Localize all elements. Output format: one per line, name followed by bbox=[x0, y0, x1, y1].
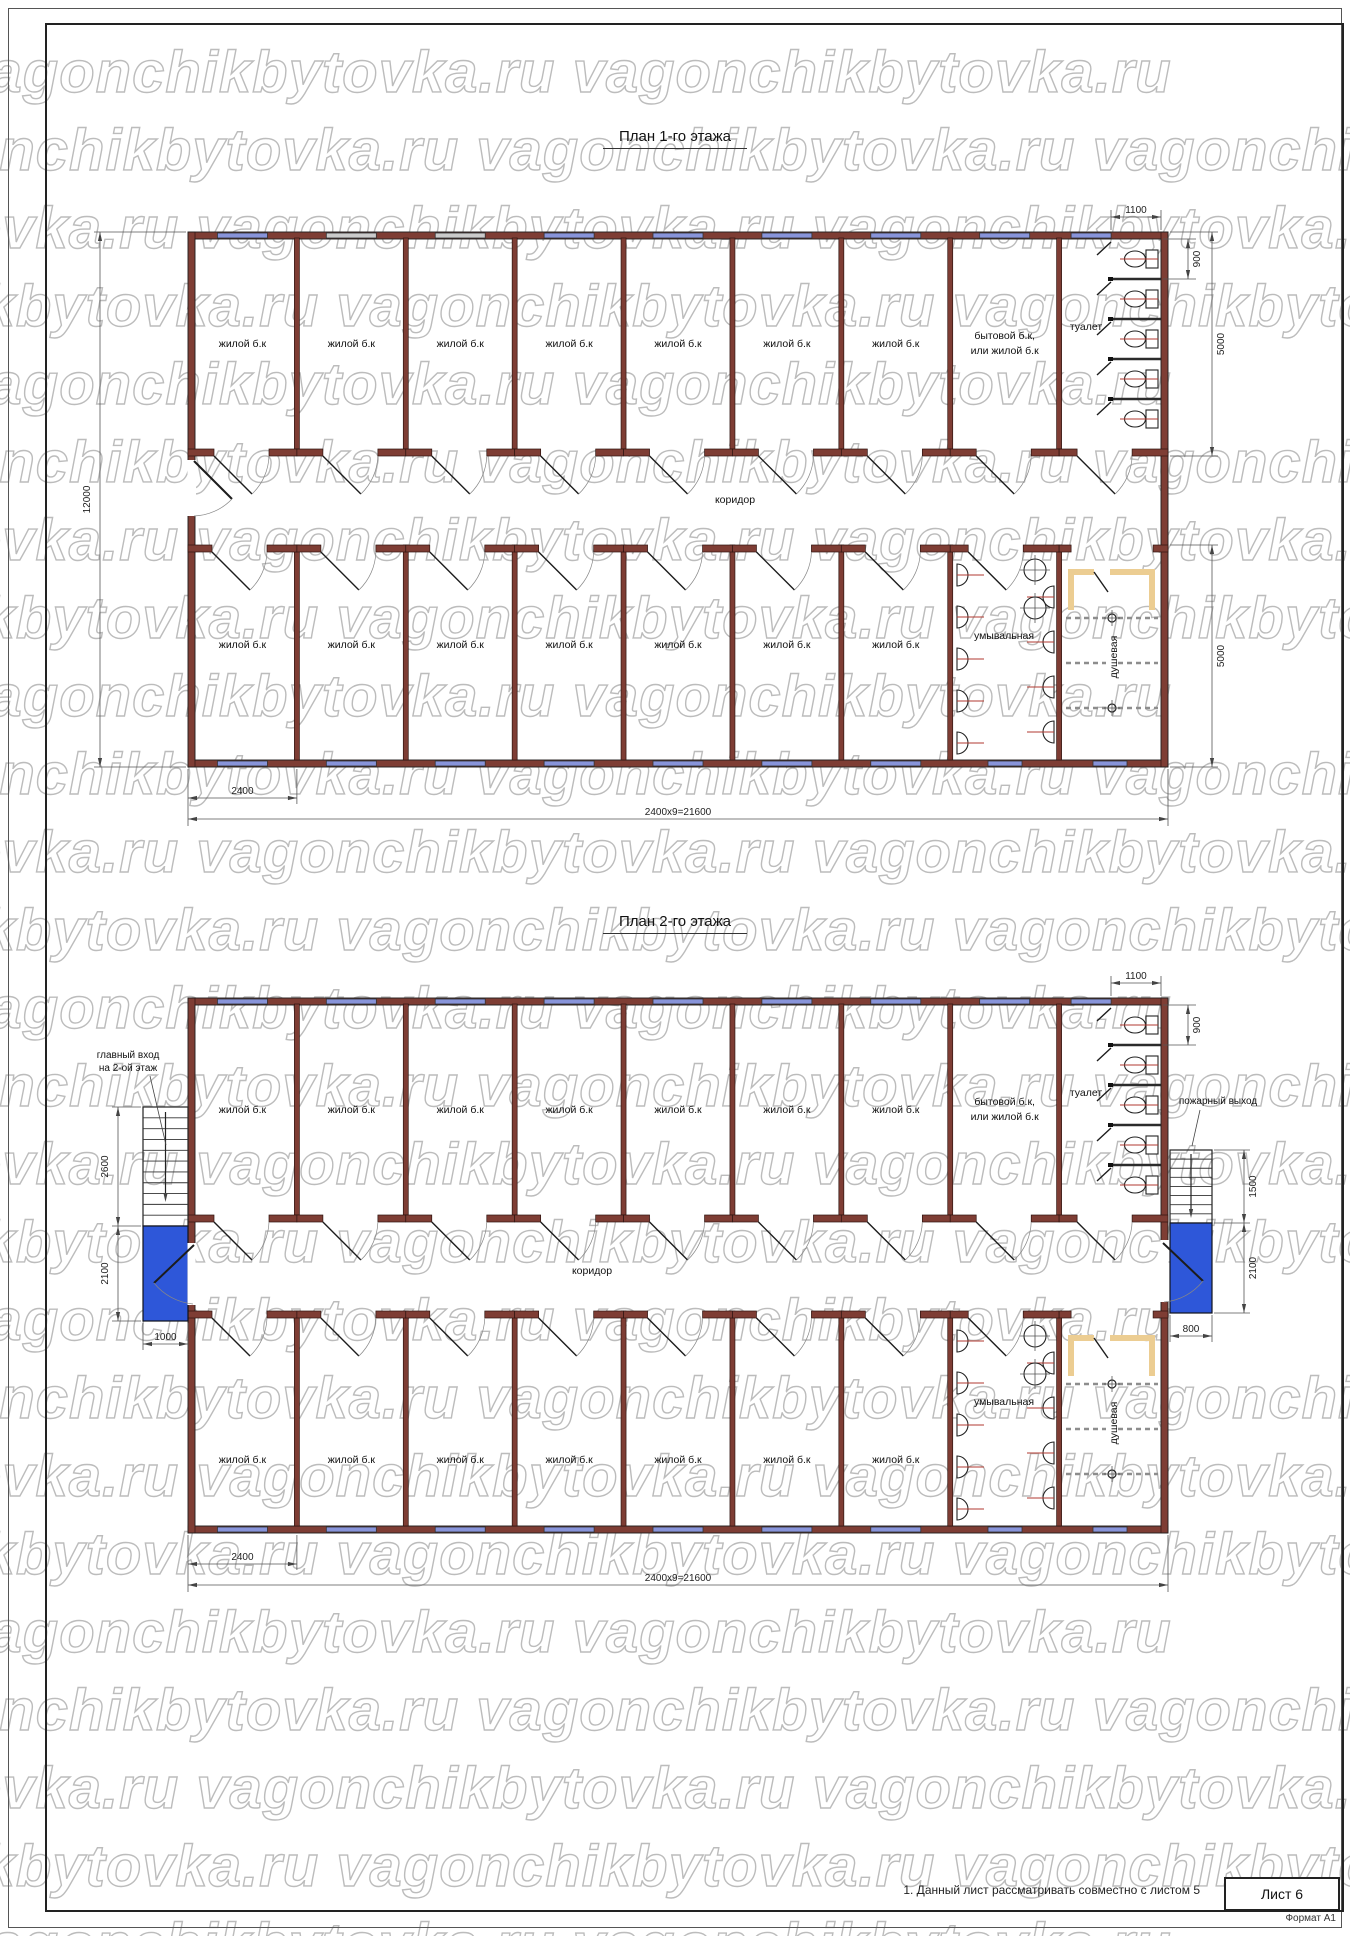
footer-note: 1. Данный лист рассматривать совместно с… bbox=[903, 1883, 1200, 1897]
plan2-title: План 2-го этажа bbox=[603, 913, 747, 934]
drawing-sheet: vagonchikbytovka.ru vagonchikbytovka.ru … bbox=[0, 0, 1350, 1936]
plan1-title: План 1-го этажа bbox=[603, 128, 747, 149]
sheet-inner-frame bbox=[45, 23, 1344, 1912]
format-label: Формат А1 bbox=[1224, 1913, 1336, 1924]
sheet-number: Лист 6 bbox=[1224, 1877, 1340, 1911]
